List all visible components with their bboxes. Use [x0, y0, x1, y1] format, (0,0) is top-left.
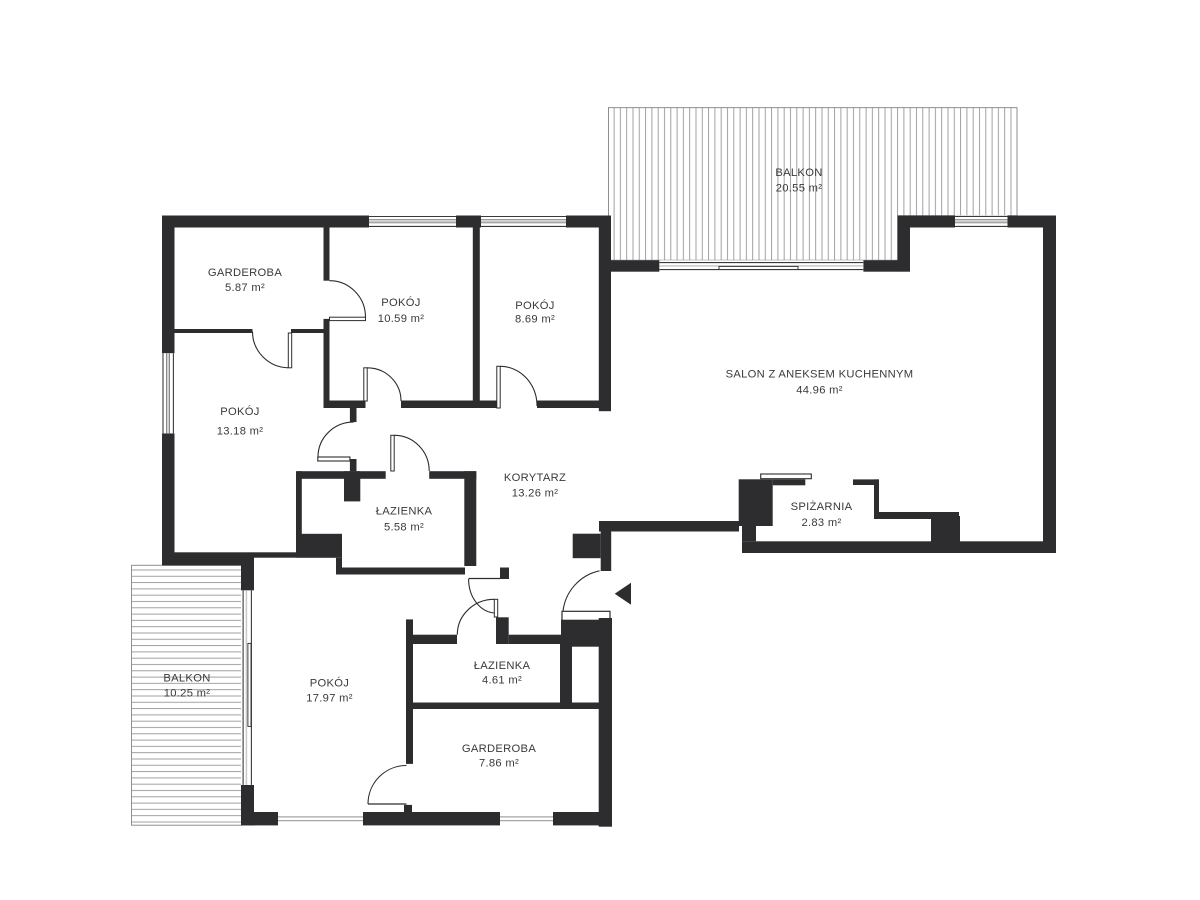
svg-text:ŁAZIENKA: ŁAZIENKA — [376, 506, 433, 518]
svg-text:44.96 m²: 44.96 m² — [796, 384, 843, 396]
svg-text:POKÓJ: POKÓJ — [310, 677, 349, 690]
svg-text:4.61 m²: 4.61 m² — [482, 675, 522, 687]
svg-text:5.87 m²: 5.87 m² — [225, 282, 265, 294]
svg-text:17.97 m²: 17.97 m² — [306, 693, 353, 705]
svg-text:8.69 m²: 8.69 m² — [515, 314, 555, 326]
svg-text:BALKON: BALKON — [775, 167, 822, 179]
svg-text:BALKON: BALKON — [163, 673, 210, 685]
svg-text:SPIŻARNIA: SPIŻARNIA — [791, 500, 853, 513]
svg-text:5.58 m²: 5.58 m² — [384, 522, 424, 534]
svg-text:POKÓJ: POKÓJ — [220, 405, 259, 418]
svg-text:POKÓJ: POKÓJ — [515, 299, 554, 312]
svg-text:13.18 m²: 13.18 m² — [217, 426, 264, 438]
svg-text:2.83 m²: 2.83 m² — [801, 517, 841, 529]
svg-text:20.55 m²: 20.55 m² — [776, 183, 823, 195]
svg-text:GARDEROBA: GARDEROBA — [462, 743, 536, 755]
svg-text:10.25 m²: 10.25 m² — [164, 688, 211, 700]
svg-text:ŁAZIENKA: ŁAZIENKA — [474, 660, 531, 672]
svg-text:13.26 m²: 13.26 m² — [512, 488, 559, 500]
svg-text:KORYTARZ: KORYTARZ — [504, 472, 566, 484]
svg-text:GARDEROBA: GARDEROBA — [208, 267, 282, 279]
svg-text:10.59 m²: 10.59 m² — [378, 313, 425, 325]
svg-text:POKÓJ: POKÓJ — [381, 296, 420, 309]
svg-text:SALON Z ANEKSEM KUCHENNYM: SALON Z ANEKSEM KUCHENNYM — [726, 368, 914, 380]
svg-text:7.86 m²: 7.86 m² — [479, 758, 519, 770]
